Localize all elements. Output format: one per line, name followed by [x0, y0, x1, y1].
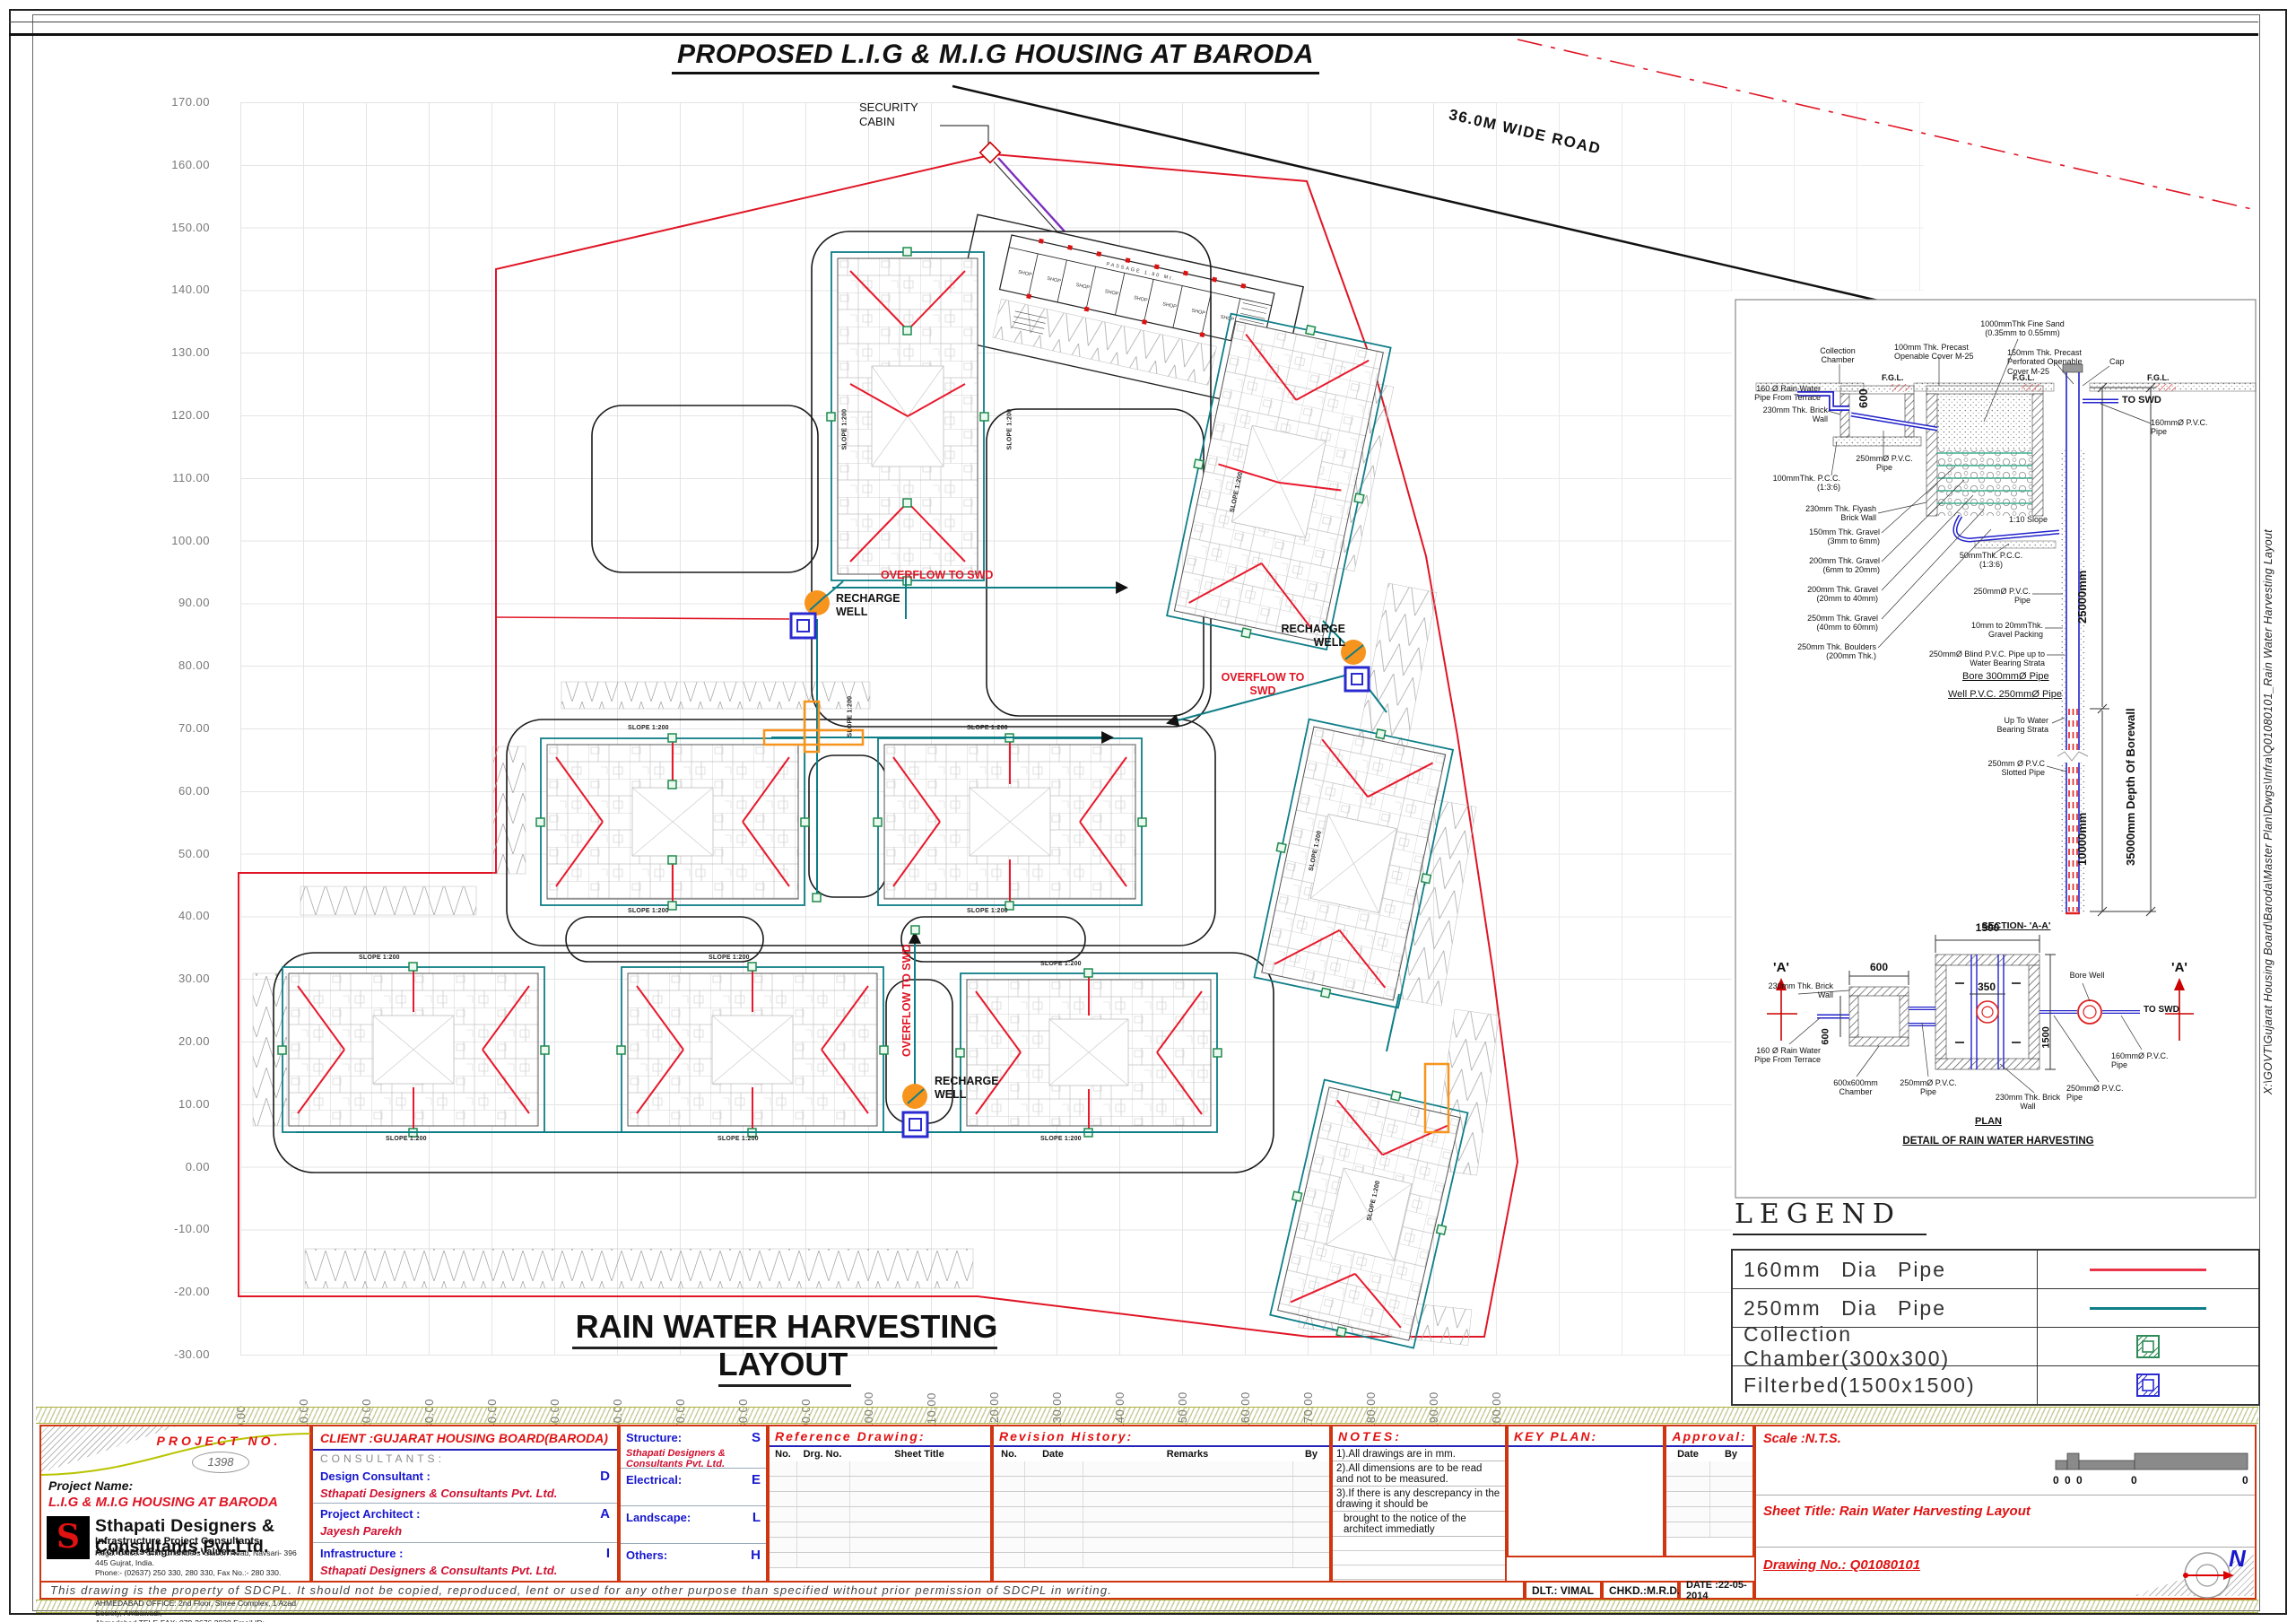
legend-label: 160mm Dia Pipe: [1733, 1251, 2038, 1288]
titleblock-client: CLIENT :GUJARAT HOUSING BOARD(BARODA) CO…: [311, 1425, 619, 1583]
axis-tick-label: 110.00: [131, 471, 210, 484]
legend-row: Filterbed(1500x1500): [1733, 1366, 2258, 1404]
svg-text:N: N: [2229, 1548, 2247, 1572]
detail-label: 160mmØ P.V.C. Pipe: [2111, 1051, 2176, 1070]
axis-tick-label: 130.00: [131, 345, 210, 359]
detail-label: 100mmThk. P.C.C. (1:3:6): [1769, 474, 1840, 493]
dlt-cell: DLT.: VIMAL: [1525, 1581, 1602, 1600]
slope-label: SLOPE 1:200: [1007, 400, 1013, 450]
slope-label: SLOPE 1:200: [967, 725, 1017, 731]
hatch-strip-top: [36, 1407, 2258, 1424]
firm-logo: S: [47, 1516, 90, 1559]
discipline-code: E: [752, 1472, 761, 1487]
discipline-role: Structure:: [626, 1431, 682, 1444]
filterbed-symbol: [2136, 1373, 2160, 1397]
detail-label: 250mm Ø P.V.C Slotted Pipe: [1970, 759, 2045, 778]
detail-label: Well P.V.C. 250mmØ Pipe: [1948, 689, 2074, 701]
plan-view-label: PLAN: [1968, 1116, 2009, 1128]
detail-dim: 35000mm Depth Of Borewall: [2125, 708, 2138, 866]
axis-tick-label: -30.00: [131, 1347, 210, 1361]
slope-label: SLOPE 1:200: [1040, 1136, 1091, 1142]
col-date: Date: [1024, 1449, 1082, 1460]
axis-tick-label: 30.00: [131, 972, 210, 985]
overflow-label-1: OVERFLOW TO SWD: [881, 569, 1060, 582]
slope-label: SLOPE 1:200: [848, 687, 854, 737]
discipline-role: Electrical:: [626, 1473, 682, 1487]
col-by: By: [1709, 1449, 1752, 1460]
svg-text:0: 0: [2065, 1474, 2071, 1487]
consultant-role: Infrastructure :: [320, 1547, 403, 1560]
address-line: Ahmedabad TELE-FAX: 079-2676 2838 Email …: [95, 1618, 310, 1622]
detail-label: 160mmØ P.V.C. Pipe: [2151, 418, 2213, 437]
axis-tick-label: 150.00: [131, 221, 210, 234]
security-cabin-symbol: [940, 126, 1065, 235]
slope-label: SLOPE 1:200: [1040, 961, 1091, 967]
building-block-E: [956, 969, 1222, 1137]
detail-label: 250mmØ P.V.C. Pipe: [1855, 454, 1914, 473]
discipline-row: Structure: S Sthapati Designers & Consul…: [621, 1426, 766, 1469]
discipline-code: S: [752, 1430, 761, 1445]
detail-label: 230mm Thk. Brick Wall: [1758, 405, 1828, 424]
detail-label: 50mmThk. P.C.C. (1:3:6): [1953, 551, 2029, 570]
axis-tick-label: 10.00: [131, 1097, 210, 1111]
detail-label: F.G.L.: [2147, 373, 2183, 382]
detail-dim: 25000mm: [2076, 571, 2090, 624]
building-block-A: [536, 734, 809, 910]
detail-label: 230mm Thk. Brick Wall: [1763, 981, 1833, 1000]
slope-label: SLOPE 1:200: [967, 908, 1017, 914]
axis-tick-label: 140.00: [131, 283, 210, 296]
collection-chamber-symbol: [2136, 1335, 2160, 1358]
detail-label: Collection Chamber: [1805, 346, 1871, 365]
discipline-row: Landscape: L: [621, 1506, 766, 1544]
detail-label: F.G.L.: [2013, 373, 2048, 382]
detail-title: DETAIL OF RAIN WATER HARVESTING: [1900, 1136, 2097, 1147]
legend-label: Collection Chamber(300x300): [1733, 1328, 2038, 1365]
axis-tick-label: 80.00: [131, 658, 210, 672]
detail-label: Bore 300mmØ Pipe: [1962, 671, 2070, 683]
detail-label: 250mm Thk. Boulders (200mm Thk.): [1790, 642, 1876, 661]
discipline-code: H: [751, 1548, 761, 1563]
detail-label: F.G.L.: [1882, 373, 1918, 382]
detail-label: TO SWD: [2144, 1005, 2192, 1016]
axis-tick-label: 20.00: [131, 1034, 210, 1048]
disclaimer: This drawing is the property of SDCPL. I…: [39, 1581, 1525, 1600]
slope-label: SLOPE 1:200: [628, 908, 678, 914]
consultant-role: Project Architect :: [320, 1507, 421, 1521]
address-line: Phone:- (02637) 250 330, 280 330, Fax No…: [95, 1568, 310, 1578]
axis-tick-label: 40.00: [131, 909, 210, 922]
axis-tick-label: 120.00: [131, 408, 210, 422]
detail-dim: 350: [1966, 981, 2007, 994]
col-sheet-title: Sheet Title: [848, 1449, 990, 1460]
building-block-C: [278, 963, 549, 1137]
detail-label: 200mm Thk. Gravel (20mm to 40mm): [1792, 585, 1878, 604]
axis-tick-label: 70.00: [131, 721, 210, 735]
teal-pipe-symbol: [2090, 1307, 2206, 1310]
slope-label: SLOPE 1:200: [717, 1136, 768, 1142]
legend-title: LEGEND: [1733, 1199, 1926, 1235]
section-marker-a: 'A': [1765, 960, 1797, 975]
building-block-B: [874, 734, 1146, 910]
axis-tick-label: 160.00: [131, 158, 210, 171]
consultant-code: A: [600, 1506, 610, 1522]
col-no: No.: [770, 1449, 796, 1460]
legend-label: Filterbed(1500x1500): [1733, 1366, 2038, 1404]
detail-label: Up To Water Bearing Strata: [1979, 716, 2048, 735]
overflow-label-2: OVERFLOW TO SWD: [1220, 671, 1306, 698]
titleblock-scale: Scale :N.T.S. 0 0 0 0 0 Sheet Title: Rai…: [1754, 1425, 2257, 1600]
axis-tick-label: 170.00: [131, 95, 210, 109]
north-arrow: N: [2164, 1548, 2254, 1599]
axis-tick-label: 60.00: [131, 784, 210, 798]
detail-label: 250mmØ Blind P.V.C. Pipe up to Water Bea…: [1928, 650, 2045, 668]
discipline-row: Electrical: E: [621, 1469, 766, 1506]
slope-label: SLOPE 1:200: [842, 400, 848, 450]
drawing-sheet: PROPOSED L.I.G & M.I.G HOUSING AT BARODA: [0, 0, 2296, 1622]
slope-label: SLOPE 1:200: [709, 955, 759, 961]
titleblock-revision: Revision History: No. Date Remarks By: [992, 1425, 1331, 1583]
recharge-well-label-3: RECHARGE WELL: [935, 1075, 1008, 1102]
file-path: X:\GOVT\Gujarat Housing Board\Baroda\Mas…: [2262, 20, 2274, 1604]
col-remarks: Remarks: [1082, 1449, 1293, 1460]
note-line: 2).All dimensions are to be read and not…: [1333, 1461, 1505, 1487]
red-pipe-symbol: [2090, 1269, 2206, 1271]
consultant-code: I: [606, 1546, 610, 1561]
detail-dim: 600: [1820, 1028, 1831, 1044]
detail-label: 1:10 Slope: [2009, 515, 2063, 524]
col-by: By: [1293, 1449, 1329, 1460]
discipline-role: Others:: [626, 1548, 667, 1562]
note-line: brought to the notice of the architect i…: [1333, 1512, 1505, 1537]
detail-label: 200mm Thk. Gravel (6mm to 20mm): [1794, 556, 1880, 575]
consultant-name: Jayesh Parekh: [320, 1524, 610, 1538]
recharge-well-label-2: RECHARGE WELL: [1263, 623, 1345, 650]
revision-table-header: No. Date Remarks By: [994, 1447, 1329, 1461]
detail-label: 250mmØ P.V.C. Pipe: [2066, 1084, 2131, 1103]
detail-dim: 10000mm: [2076, 813, 2090, 866]
consultant-row: Design Consultant : D Sthapati Designers…: [313, 1467, 617, 1504]
consultant-row: Project Architect : A Jayesh Parekh: [313, 1504, 617, 1543]
titleblock-firm: PROJECT NO. 1398 Project Name: L.I.G & M…: [39, 1425, 311, 1583]
axis-tick-label: -20.00: [131, 1285, 210, 1298]
detail-label: 250mm Thk. Gravel (40mm to 60mm): [1792, 614, 1878, 632]
building-block-1: [827, 248, 988, 585]
detail-label: 150mm Thk. Precast Perforated Openable C…: [2007, 348, 2104, 376]
detail-label: 150mm Thk. Gravel (3mm to 6mm): [1794, 528, 1880, 546]
notes-heading: NOTES:: [1333, 1426, 1505, 1447]
approval-table-header: Date By: [1666, 1447, 1752, 1461]
consultant-name: Sthapati Designers & Consultants Pvt. Lt…: [320, 1564, 610, 1577]
discipline-code: L: [752, 1510, 761, 1525]
consultant-role: Design Consultant :: [320, 1469, 430, 1483]
detail-label: 160 Ø Rain Water Pipe From Terrace: [1738, 1046, 1821, 1065]
svg-text:0: 0: [2242, 1474, 2248, 1487]
date-cell: DATE :22-05-2014: [1679, 1581, 1754, 1600]
detail-dim: 1500: [1962, 922, 2013, 935]
axis-tick-label: -10.00: [131, 1222, 210, 1235]
discipline-row: Others: H: [621, 1544, 766, 1567]
detail-label: 250mmØ P.V.C. Pipe: [1896, 1078, 1961, 1097]
titleblock-keyplan: KEY PLAN:: [1507, 1425, 1665, 1557]
axis-tick-label: 90.00: [131, 596, 210, 609]
legend-row: Collection Chamber(300x300): [1733, 1328, 2258, 1366]
detail-label: 250mmØ P.V.C. Pipe: [1966, 587, 2031, 606]
detail-dim: 600: [1857, 962, 1901, 974]
svg-text:0: 0: [2131, 1474, 2137, 1487]
reference-heading: Reference Drawing:: [770, 1426, 990, 1447]
security-cabin-label: SECURITY CABIN: [859, 100, 940, 128]
note-line: 3).If there is any descrepancy in the dr…: [1333, 1487, 1505, 1512]
titleblock-disciplines: Structure: S Sthapati Designers & Consul…: [619, 1425, 768, 1583]
scale-bar: 0 0 0 0 0: [2052, 1448, 2254, 1487]
project-name-label: Project Name:: [48, 1478, 133, 1493]
consultant-row: Infrastructure : I Sthapati Designers & …: [313, 1543, 617, 1580]
drawing-no: Drawing No.: Q01080101: [1763, 1557, 1920, 1573]
building-block-D: [617, 963, 888, 1137]
overflow-label-3: OVERFLOW TO SWD: [900, 937, 914, 1057]
discipline-name: Sthapati Designers & Consultants Pvt. Lt…: [626, 1448, 761, 1469]
detail-label: 160 Ø Rain Water Pipe From Terrace: [1742, 384, 1821, 403]
detail-label: Bore Well: [2059, 971, 2115, 980]
titleblock-reference: Reference Drawing: No. Drg. No. Sheet Ti…: [768, 1425, 992, 1583]
legend-label: 250mm Dia Pipe: [1733, 1289, 2038, 1327]
detail-dim: 1500: [2040, 1026, 2052, 1048]
detail-label: 230mm Thk. Flyash Brick Wall: [1792, 504, 1876, 523]
col-date: Date: [1666, 1449, 1709, 1460]
detail-label: 10mm to 20mmThk. Gravel Packing: [1961, 621, 2043, 640]
consultants-heading: CONSULTANTS:: [313, 1451, 617, 1467]
address-line: Regd. Office:- 'Ohm Chambers' Station Ro…: [95, 1548, 310, 1568]
recharge-well-label-1: RECHARGE WELL: [836, 592, 909, 619]
plan-title: RAIN WATER HARVESTING LAYOUT: [507, 1308, 1063, 1383]
slope-label: SLOPE 1:200: [386, 1136, 436, 1142]
project-no-value: 1398: [192, 1452, 249, 1473]
legend-row: 160mm Dia Pipe: [1733, 1251, 2258, 1289]
axis-tick-label: 50.00: [131, 847, 210, 860]
slope-label: SLOPE 1:200: [359, 955, 409, 961]
col-drg-no: Drg. No.: [796, 1449, 848, 1460]
revision-heading: Revision History:: [994, 1426, 1329, 1447]
detail-label: 100mm Thk. Precast Openable Cover M-25: [1894, 343, 1984, 362]
hatch-strip-bottom: [36, 1600, 2258, 1613]
chkd-cell: CHKD.:M.R.D.: [1602, 1581, 1679, 1600]
detail-label: 1000mmThk Fine Sand (0.35mm to 0.55mm): [1970, 319, 2075, 338]
client-name: CLIENT :GUJARAT HOUSING BOARD(BARODA): [313, 1426, 617, 1451]
approval-heading: Approval:: [1666, 1426, 1752, 1447]
consultant-name: Sthapati Designers & Consultants Pvt. Lt…: [320, 1487, 610, 1500]
discipline-role: Landscape:: [626, 1511, 691, 1524]
consultant-code: D: [600, 1469, 610, 1484]
project-name: L.I.G & M.I.G HOUSING AT BARODA: [48, 1495, 278, 1510]
detail-dim: 600: [1857, 372, 1871, 408]
project-no-label: PROJECT NO.: [138, 1434, 300, 1448]
detail-label: Cap: [2109, 357, 2138, 366]
svg-text:0: 0: [2076, 1474, 2083, 1487]
titleblock-approval: Approval: Date By: [1665, 1425, 1754, 1557]
detail-label: 600x600mm Chamber: [1819, 1078, 1892, 1097]
col-no: No.: [994, 1449, 1024, 1460]
legend: 160mm Dia Pipe 250mm Dia Pipe Collection…: [1731, 1249, 2260, 1406]
titleblock-notes: NOTES: 1).All drawings are in mm. 2).All…: [1331, 1425, 1507, 1583]
detail-label: TO SWD: [2122, 395, 2176, 406]
note-line: 1).All drawings are in mm.: [1333, 1447, 1505, 1461]
address-line: AHMEDABAD OFFICE: 2nd Floor, Shree Compl…: [95, 1599, 310, 1618]
axis-tick-label: 100.00: [131, 534, 210, 547]
keyplan-heading: KEY PLAN:: [1509, 1426, 1663, 1447]
svg-text:0: 0: [2053, 1474, 2059, 1487]
sheet-title-label: Sheet Title: Rain Water Harvesting Layou…: [1763, 1504, 2031, 1519]
axis-tick-label: 0.00: [131, 1160, 210, 1173]
detail-label: 230mm Thk. Brick Wall: [1991, 1093, 2065, 1112]
slope-label: SLOPE 1:200: [628, 725, 678, 731]
reference-table-header: No. Drg. No. Sheet Title: [770, 1447, 990, 1461]
section-marker-a: 'A': [2163, 960, 2196, 975]
scale-label: Scale :N.T.S.: [1763, 1432, 1841, 1446]
